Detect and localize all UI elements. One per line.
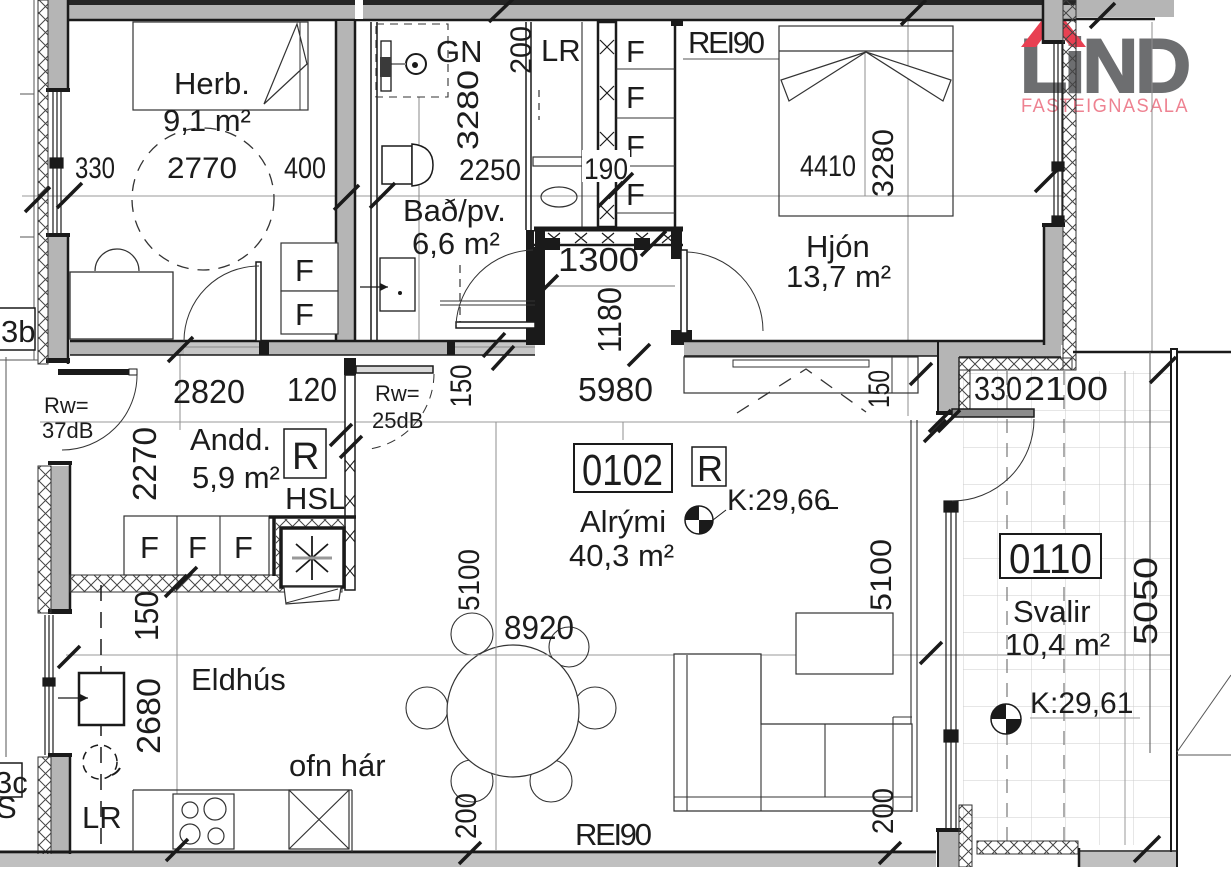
svg-text:ofn hár: ofn hár <box>289 748 386 783</box>
svg-text:R: R <box>697 448 723 489</box>
svg-text:Rw=: Rw= <box>44 393 89 418</box>
svg-text:GN: GN <box>436 34 483 69</box>
svg-text:F: F <box>626 34 645 69</box>
svg-text:K:29,61: K:29,61 <box>1030 687 1133 720</box>
svg-text:F: F <box>626 80 645 115</box>
svg-text:2270: 2270 <box>126 427 163 501</box>
svg-text:REI90: REI90 <box>575 817 652 852</box>
svg-text:HSL: HSL <box>285 481 345 516</box>
svg-text:Eldhús: Eldhús <box>191 662 286 697</box>
svg-text:F: F <box>140 530 159 565</box>
svg-text:4410: 4410 <box>800 150 856 183</box>
svg-text:0102: 0102 <box>582 446 663 495</box>
svg-text:S: S <box>0 790 17 825</box>
svg-text:190: 190 <box>584 153 628 186</box>
svg-text:9,1 m²: 9,1 m² <box>163 103 251 138</box>
svg-text:Svalir: Svalir <box>1013 594 1091 629</box>
svg-text:330: 330 <box>75 152 115 185</box>
svg-text:Herb.: Herb. <box>174 66 250 101</box>
svg-text:3b: 3b <box>1 314 35 349</box>
svg-text:40,3 m²: 40,3 m² <box>569 538 674 573</box>
svg-text:2680: 2680 <box>130 678 167 754</box>
svg-text:R: R <box>292 436 319 478</box>
svg-text:F: F <box>626 177 645 212</box>
svg-text:5100: 5100 <box>865 539 898 611</box>
svg-text:6,6 m²: 6,6 m² <box>412 226 500 261</box>
svg-text:1300: 1300 <box>558 241 639 278</box>
svg-text:FASTEIGNASALA: FASTEIGNASALA <box>1021 96 1189 117</box>
svg-text:150: 150 <box>128 591 165 641</box>
svg-text:5050: 5050 <box>1127 557 1164 645</box>
svg-text:Alrými: Alrými <box>580 504 666 539</box>
svg-text:8920: 8920 <box>504 609 574 646</box>
svg-text:200: 200 <box>450 793 483 839</box>
svg-text:F: F <box>295 253 314 288</box>
svg-text:120: 120 <box>287 371 337 408</box>
svg-text:F: F <box>234 530 253 565</box>
svg-text:K:29,66: K:29,66 <box>727 484 830 517</box>
svg-text:5100: 5100 <box>453 549 486 611</box>
svg-text:Andd.: Andd. <box>190 422 271 457</box>
svg-text:Rw=: Rw= <box>375 381 420 406</box>
svg-text:5,9 m²: 5,9 m² <box>192 460 280 495</box>
svg-text:LR: LR <box>541 33 581 68</box>
svg-text:37dB: 37dB <box>42 418 93 443</box>
svg-text:330: 330 <box>974 370 1022 407</box>
svg-text:F: F <box>188 530 207 565</box>
svg-text:REI90: REI90 <box>688 25 765 60</box>
svg-text:200: 200 <box>505 26 538 74</box>
svg-text:2770: 2770 <box>167 152 237 185</box>
svg-text:0110: 0110 <box>1009 535 1092 582</box>
svg-text:1180: 1180 <box>591 287 628 353</box>
svg-text:400: 400 <box>284 152 326 185</box>
svg-text:F: F <box>295 297 314 332</box>
svg-text:Bað/pv.: Bað/pv. <box>403 193 506 228</box>
svg-text:25dB: 25dB <box>372 408 423 433</box>
svg-text:10,4 m²: 10,4 m² <box>1005 627 1110 662</box>
svg-text:2820: 2820 <box>173 373 245 410</box>
svg-text:LR: LR <box>82 800 122 835</box>
svg-text:3280: 3280 <box>452 70 485 150</box>
svg-text:150: 150 <box>445 365 478 408</box>
svg-text:5980: 5980 <box>578 371 653 408</box>
svg-text:2100: 2100 <box>1024 370 1108 407</box>
svg-text:150: 150 <box>863 370 896 408</box>
svg-text:200: 200 <box>867 788 900 834</box>
svg-text:13,7 m²: 13,7 m² <box>786 259 891 294</box>
svg-text:3280: 3280 <box>867 129 900 197</box>
svg-text:2250: 2250 <box>459 154 521 187</box>
